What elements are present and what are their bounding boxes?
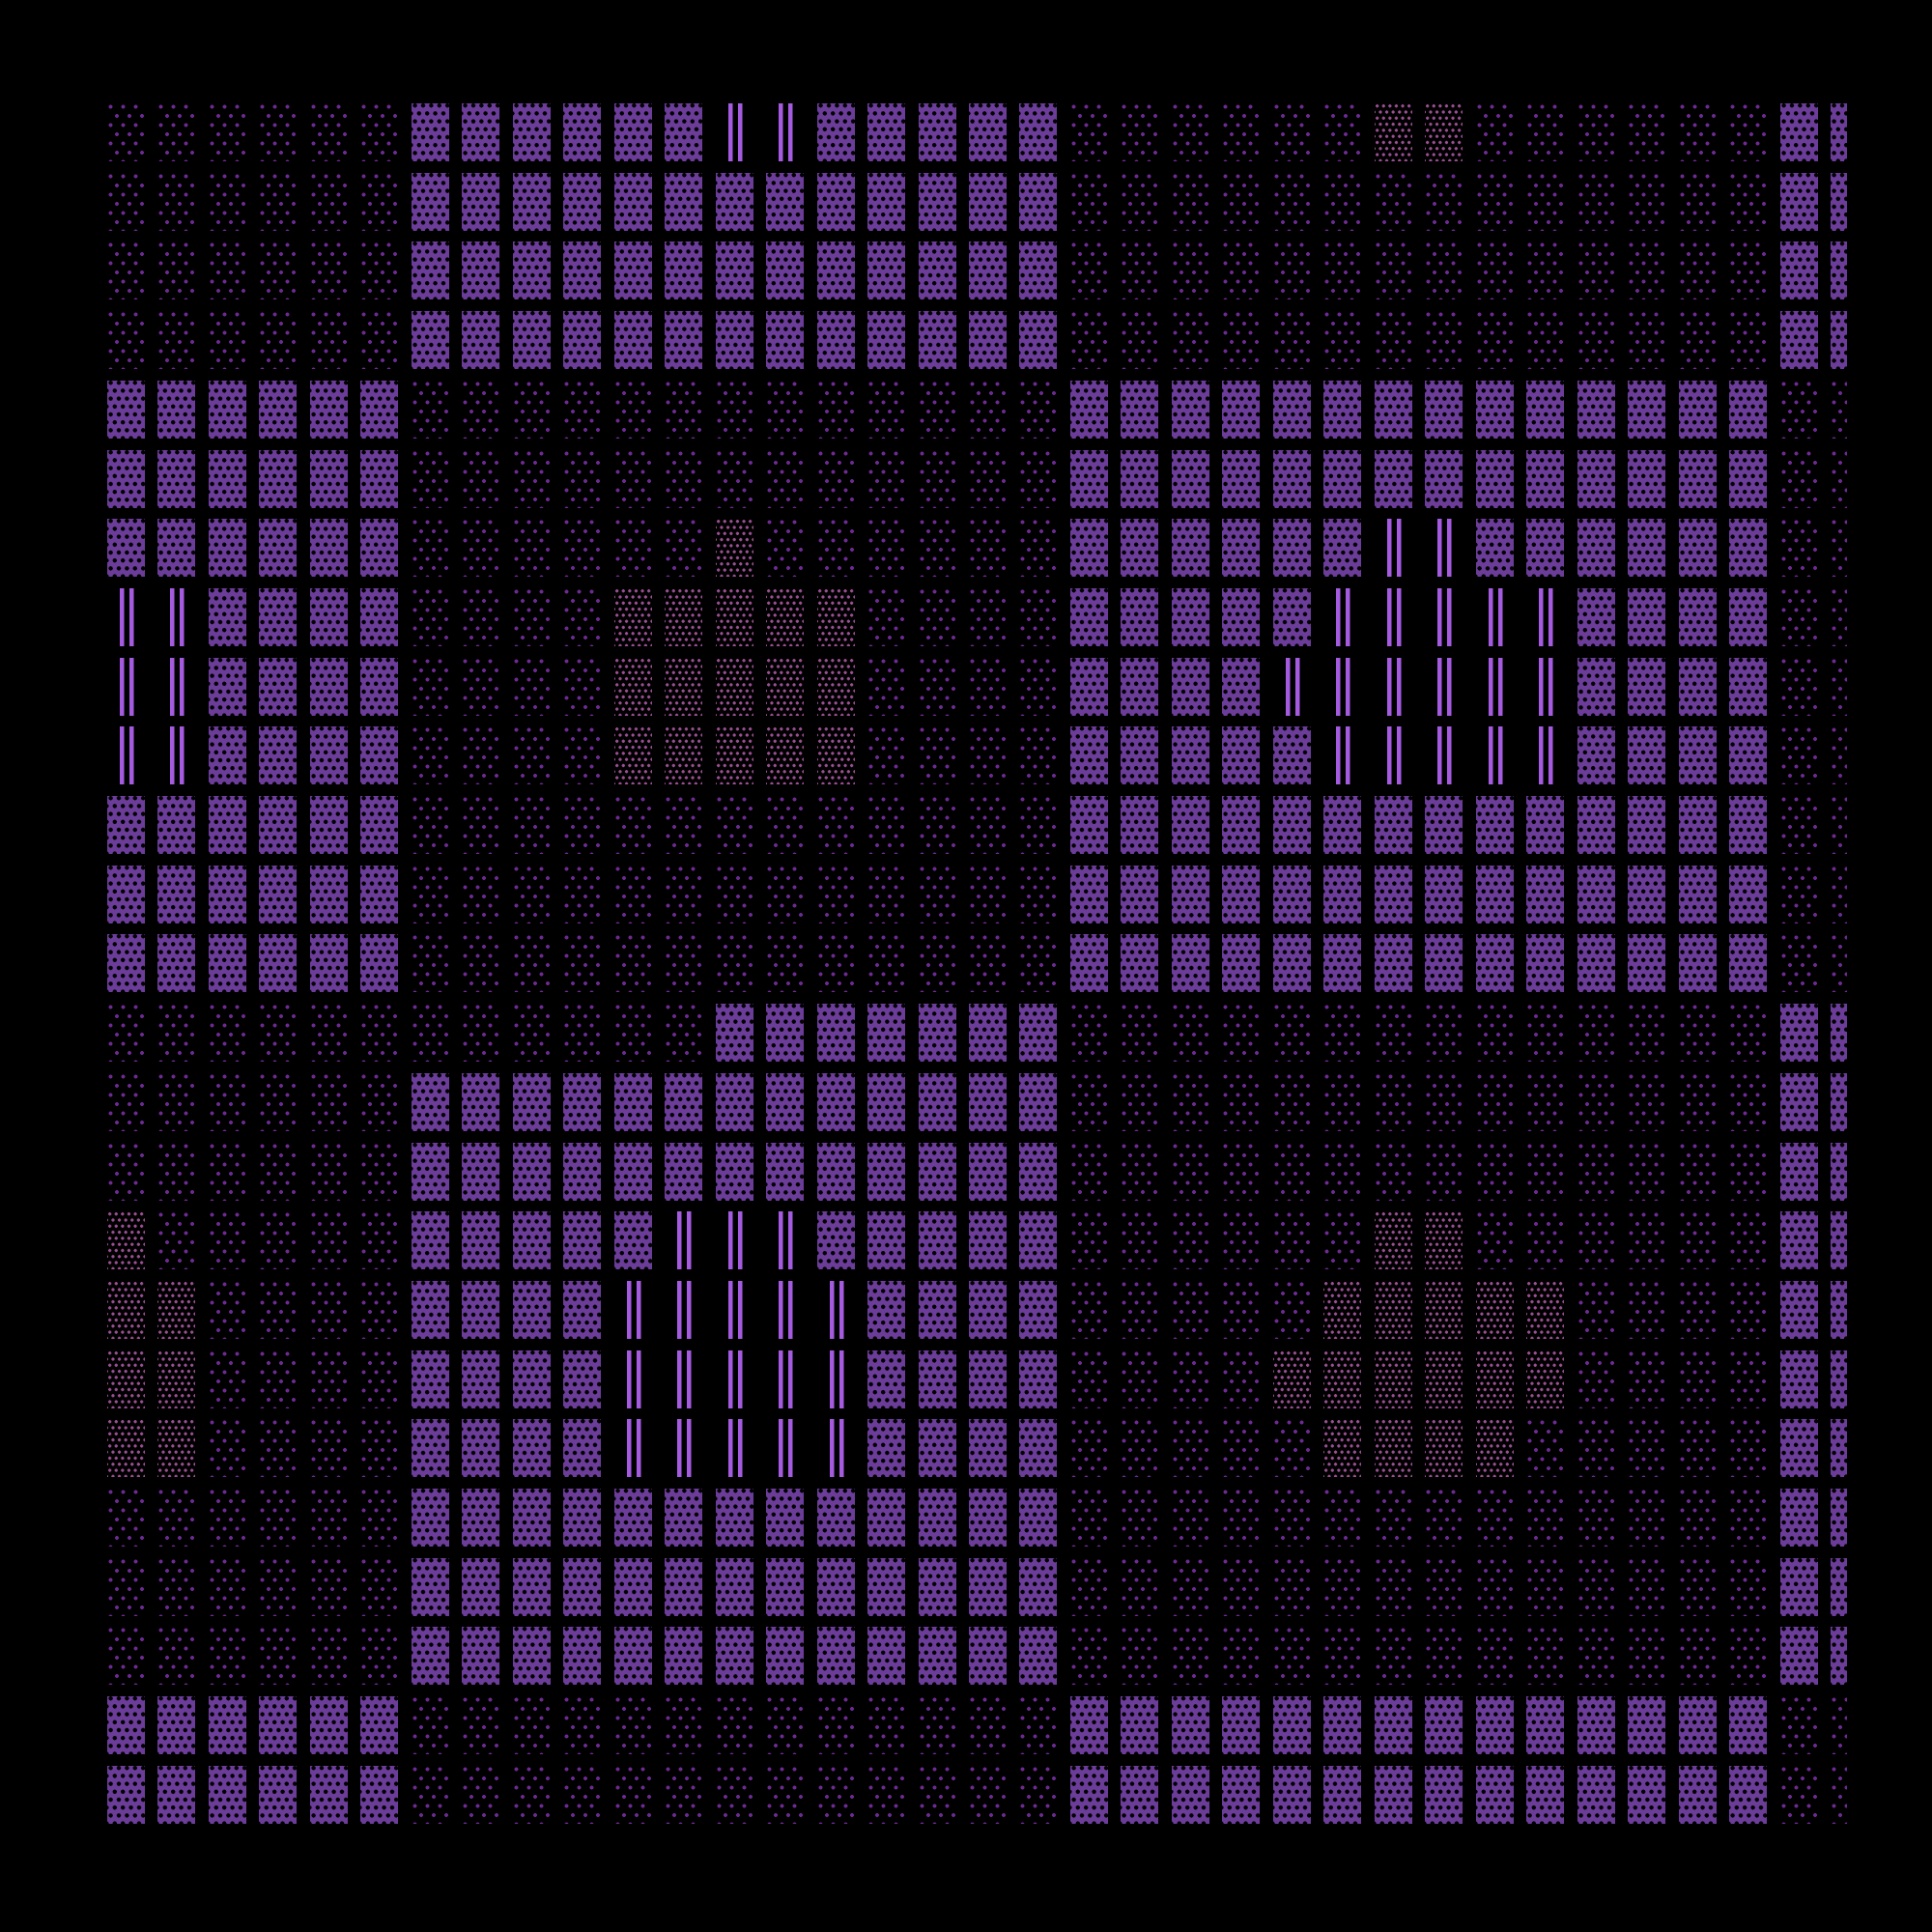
cell-bars (766, 1350, 804, 1408)
cell-bright (157, 1696, 195, 1754)
cell-bright (1729, 726, 1767, 784)
cell-bright (1222, 934, 1260, 992)
cell-bright (1375, 934, 1412, 992)
cell-dim (614, 381, 652, 439)
cell-dim (1729, 1073, 1767, 1131)
cell-bright (1780, 241, 1818, 299)
cell-dim (462, 450, 499, 508)
cell-bars (614, 1419, 652, 1477)
cell-bright (513, 173, 551, 231)
cell-bright (1577, 381, 1615, 439)
cell-bright (157, 796, 195, 854)
cell-dim (412, 1696, 449, 1754)
cell-bright (107, 796, 145, 854)
cell-dim (1628, 1419, 1665, 1477)
cell-dim (1628, 173, 1665, 231)
cell-bright (1070, 450, 1108, 508)
cell-bright (1019, 173, 1057, 231)
cell-bright (1628, 658, 1665, 716)
cell-dim (157, 1073, 195, 1131)
cell-dim (1222, 1281, 1260, 1339)
cell-dim (310, 103, 348, 161)
cell-dim (1222, 1143, 1260, 1201)
cell-bright (360, 866, 398, 923)
cell-dim (1070, 241, 1108, 299)
cell-dim (1323, 1143, 1361, 1201)
cell-bright (1172, 1766, 1209, 1824)
cell-dim (1172, 1350, 1209, 1408)
cell-bright (1780, 173, 1818, 231)
cell-bright (1273, 450, 1311, 508)
cell-dim (1172, 1419, 1209, 1477)
cell-bright (412, 1558, 449, 1616)
cell-dim (1019, 934, 1057, 992)
cell-bright (1070, 381, 1108, 439)
cell-dim (563, 588, 601, 646)
cell-dim (1121, 1558, 1158, 1616)
cell-dim (1323, 173, 1361, 231)
cell-bars (1375, 726, 1412, 784)
cell-dim (1577, 1004, 1615, 1062)
cell-dim (1526, 1211, 1564, 1269)
cell-bright (1679, 1766, 1717, 1824)
cell-bright (1222, 796, 1260, 854)
cell-bars (665, 1350, 702, 1408)
cell-dim (1172, 1004, 1209, 1062)
cell-medium (1425, 1350, 1463, 1408)
cell-dim (1222, 1419, 1260, 1477)
cell-bright (1780, 1627, 1818, 1685)
cell-bright (1121, 658, 1158, 716)
cell-dim (969, 796, 1007, 854)
cell-bright (1628, 866, 1665, 923)
cell-medium (716, 658, 753, 716)
cell-dim (209, 1004, 246, 1062)
cell-bright (1628, 519, 1665, 577)
cell-bright (412, 311, 449, 369)
cell-dim (1780, 658, 1818, 716)
cell-bright (107, 866, 145, 923)
cell-dim (513, 658, 551, 716)
cell-bright (1679, 1696, 1717, 1754)
cell-dim (1628, 1281, 1665, 1339)
cell-dim (310, 1004, 348, 1062)
cell-dim (1628, 103, 1665, 161)
cell-bright (1780, 1143, 1818, 1201)
cell-bright (1323, 796, 1361, 854)
cell-bright (1780, 311, 1818, 369)
cell-bright (1526, 866, 1564, 923)
cell-dim (1121, 1281, 1158, 1339)
cell-dim (462, 1696, 499, 1754)
cell-bright (1476, 796, 1514, 854)
cell-dim (462, 866, 499, 923)
cell-bright (1577, 866, 1615, 923)
cell-bars (614, 1281, 652, 1339)
cell-dim (1831, 866, 1847, 923)
cell-bright (259, 726, 297, 784)
cell-medium (665, 588, 702, 646)
cell-dim (1577, 1419, 1615, 1477)
cell-dim (259, 311, 297, 369)
cell-bright (665, 103, 702, 161)
cell-dim (1070, 1489, 1108, 1547)
cell-bright (209, 658, 246, 716)
cell-bright (969, 311, 1007, 369)
cell-dim (817, 934, 855, 992)
cell-dim (1476, 1558, 1514, 1616)
cell-dim (1729, 1281, 1767, 1339)
cell-bright (1476, 450, 1514, 508)
cell-dim (1780, 1696, 1818, 1754)
cell-dim (1729, 311, 1767, 369)
cell-bright (563, 241, 601, 299)
cell-bright (157, 519, 195, 577)
cell-dim (1222, 1073, 1260, 1131)
cell-bright (1172, 381, 1209, 439)
cell-dim (209, 1350, 246, 1408)
cell-bright (969, 1004, 1007, 1062)
cell-dim (1476, 311, 1514, 369)
cell-dim (1323, 1558, 1361, 1616)
cell-bright (310, 1696, 348, 1754)
cell-dim (1577, 1350, 1615, 1408)
cell-medium (614, 726, 652, 784)
cell-bright (513, 1627, 551, 1685)
cell-dim (1019, 658, 1057, 716)
cell-dim (1628, 1350, 1665, 1408)
cell-bright (1679, 519, 1717, 577)
cell-bright (1628, 726, 1665, 784)
cell-bright (1577, 726, 1615, 784)
cell-dim (1831, 1696, 1847, 1754)
cell-dim (1121, 1489, 1158, 1547)
cell-bright (1831, 241, 1847, 299)
cell-bright (1729, 866, 1767, 923)
cell-bright (412, 1073, 449, 1131)
cell-dim (1172, 173, 1209, 231)
cell-medium (107, 1419, 145, 1477)
cell-bright (817, 1627, 855, 1685)
cell-dim (1577, 1281, 1615, 1339)
cell-bright (665, 173, 702, 231)
cell-dim (1273, 241, 1311, 299)
cell-bright (665, 1627, 702, 1685)
cell-bright (1019, 1073, 1057, 1131)
cell-bright (563, 1350, 601, 1408)
cell-dim (1019, 1766, 1057, 1824)
cell-bright (969, 1073, 1007, 1131)
cell-dim (1323, 1004, 1361, 1062)
cell-dim (766, 1696, 804, 1754)
cell-dim (462, 726, 499, 784)
cell-bright (1070, 588, 1108, 646)
cell-dim (1323, 1489, 1361, 1547)
cell-dim (1070, 311, 1108, 369)
cell-dim (1577, 173, 1615, 231)
cell-dim (360, 1627, 398, 1685)
cell-bright (1577, 450, 1615, 508)
cell-dim (310, 1419, 348, 1477)
cell-bright (1172, 519, 1209, 577)
cell-bars (665, 1281, 702, 1339)
cell-dim (1526, 311, 1564, 369)
cell-dim (817, 450, 855, 508)
cell-dim (1425, 1489, 1463, 1547)
cell-dim (563, 450, 601, 508)
cell-bright (1172, 796, 1209, 854)
cell-bright (1679, 588, 1717, 646)
cell-dim (1577, 1073, 1615, 1131)
cell-dim (1679, 1211, 1717, 1269)
cell-dim (563, 726, 601, 784)
cell-bright (360, 519, 398, 577)
cell-dim (107, 1627, 145, 1685)
cell-dim (1679, 1004, 1717, 1062)
cell-dim (614, 519, 652, 577)
cell-bright (614, 241, 652, 299)
cell-bright (360, 796, 398, 854)
cell-dim (259, 1558, 297, 1616)
cell-dim (1172, 1073, 1209, 1131)
cell-dim (157, 241, 195, 299)
cell-dim (1222, 103, 1260, 161)
cell-bars (716, 103, 753, 161)
cell-bright (1070, 796, 1108, 854)
cell-dim (1273, 311, 1311, 369)
cell-dim (310, 311, 348, 369)
cell-bright (209, 796, 246, 854)
cell-dim (157, 1211, 195, 1269)
cell-dim (1375, 311, 1412, 369)
cell-bright (462, 241, 499, 299)
cell-bars (1425, 658, 1463, 716)
cell-dim (1222, 1627, 1260, 1685)
cell-dim (1628, 241, 1665, 299)
cell-bright (969, 173, 1007, 231)
cell-bright (1019, 241, 1057, 299)
cell-dim (1323, 1073, 1361, 1131)
cell-dim (563, 796, 601, 854)
cell-dim (1070, 1350, 1108, 1408)
cell-bright (462, 1558, 499, 1616)
cell-medium (716, 726, 753, 784)
cell-dim (1273, 1211, 1311, 1269)
cell-bright (1172, 1696, 1209, 1754)
cell-bright (1831, 173, 1847, 231)
cell-dim (919, 934, 956, 992)
cell-bars (107, 658, 145, 716)
cell-bright (665, 1489, 702, 1547)
cell-dim (209, 1627, 246, 1685)
cell-bright (817, 241, 855, 299)
cell-bright (919, 1489, 956, 1547)
cell-bars (716, 1419, 753, 1477)
cell-dim (1831, 726, 1847, 784)
cell-dim (1273, 1489, 1311, 1547)
cell-dim (1476, 173, 1514, 231)
cell-bright (1273, 519, 1311, 577)
cell-dim (1729, 1211, 1767, 1269)
cell-dim (1019, 726, 1057, 784)
cell-bright (1729, 381, 1767, 439)
cell-bright (360, 450, 398, 508)
cell-bright (919, 1558, 956, 1616)
cell-bright (716, 1558, 753, 1616)
cell-bright (513, 1073, 551, 1131)
cell-bright (1526, 1696, 1564, 1754)
cell-dim (563, 1004, 601, 1062)
cell-dim (919, 381, 956, 439)
cell-bright (1172, 450, 1209, 508)
cell-bright (867, 1211, 905, 1269)
cell-bright (462, 1627, 499, 1685)
cell-dim (1172, 1489, 1209, 1547)
cell-bright (1526, 519, 1564, 577)
cell-dim (614, 934, 652, 992)
cell-dim (1526, 103, 1564, 161)
cell-dim (1425, 1073, 1463, 1131)
cell-dim (969, 1696, 1007, 1754)
cell-bars (1425, 588, 1463, 646)
cell-bright (107, 450, 145, 508)
cell-medium (1375, 1281, 1412, 1339)
cell-dim (1729, 1004, 1767, 1062)
cell-dim (157, 1143, 195, 1201)
cell-dim (1679, 1281, 1717, 1339)
cell-bright (563, 1419, 601, 1477)
cell-bright (1780, 103, 1818, 161)
cell-dim (157, 1627, 195, 1685)
cell-bright (1780, 1281, 1818, 1339)
cell-dim (1070, 1627, 1108, 1685)
cell-dim (107, 1489, 145, 1547)
cell-bright (766, 173, 804, 231)
cell-bright (1679, 934, 1717, 992)
cell-bright (614, 103, 652, 161)
cell-dim (563, 866, 601, 923)
cell-medium (665, 726, 702, 784)
cell-bright (919, 1627, 956, 1685)
cell-bright (209, 588, 246, 646)
cell-bars (157, 658, 195, 716)
cell-dim (1679, 241, 1717, 299)
cell-bright (209, 1766, 246, 1824)
cell-dim (1375, 1004, 1412, 1062)
cell-bright (766, 1143, 804, 1201)
cell-dim (969, 450, 1007, 508)
cell-bright (665, 1558, 702, 1616)
cell-dim (1780, 934, 1818, 992)
cell-dim (412, 519, 449, 577)
cell-dim (1577, 1489, 1615, 1547)
cell-dim (1222, 1211, 1260, 1269)
cell-medium (1476, 1350, 1514, 1408)
cell-medium (716, 588, 753, 646)
cell-bright (1425, 381, 1463, 439)
cell-dim (1019, 1696, 1057, 1754)
cell-bright (1273, 381, 1311, 439)
cell-bright (1628, 1766, 1665, 1824)
cell-dim (107, 1073, 145, 1131)
cell-dim (310, 1489, 348, 1547)
cell-bright (867, 1004, 905, 1062)
cell-bars (817, 1419, 855, 1477)
cell-dim (1425, 1143, 1463, 1201)
cell-dim (716, 1766, 753, 1824)
cell-dim (513, 1696, 551, 1754)
cell-bright (614, 1489, 652, 1547)
cell-bright (867, 241, 905, 299)
cell-bright (1121, 450, 1158, 508)
cell-bright (1375, 381, 1412, 439)
cell-dim (412, 450, 449, 508)
cell-dim (817, 796, 855, 854)
cell-bright (1273, 726, 1311, 784)
cell-dim (1780, 519, 1818, 577)
cell-dim (462, 934, 499, 992)
cell-bright (1577, 934, 1615, 992)
cell-bright (513, 1211, 551, 1269)
cell-dim (360, 1143, 398, 1201)
cell-bright (919, 1281, 956, 1339)
cell-bright (209, 866, 246, 923)
cell-dim (1831, 1766, 1847, 1824)
cell-bright (614, 1558, 652, 1616)
cell-bright (867, 103, 905, 161)
cell-dim (665, 1004, 702, 1062)
cell-dim (157, 311, 195, 369)
cell-dim (969, 866, 1007, 923)
cell-bright (867, 311, 905, 369)
cell-dim (1729, 1627, 1767, 1685)
cell-bright (259, 934, 297, 992)
cell-dim (310, 173, 348, 231)
cell-dim (462, 1766, 499, 1824)
cell-bright (1273, 866, 1311, 923)
cell-bright (1679, 450, 1717, 508)
cell-bright (665, 1073, 702, 1131)
cell-bright (1273, 1766, 1311, 1824)
cell-dim (766, 934, 804, 992)
cell-dim (1425, 1627, 1463, 1685)
cell-bars (1375, 658, 1412, 716)
cell-bright (969, 1558, 1007, 1616)
cell-bars (1323, 658, 1361, 716)
cell-bright (360, 658, 398, 716)
cell-dim (1172, 1558, 1209, 1616)
cell-bright (919, 173, 956, 231)
cell-dim (1628, 1627, 1665, 1685)
cell-dim (969, 519, 1007, 577)
cell-dim (1070, 1143, 1108, 1201)
cell-bright (513, 1489, 551, 1547)
cell-bright (969, 1211, 1007, 1269)
cell-bright (817, 1211, 855, 1269)
cell-dim (360, 1558, 398, 1616)
cell-bright (766, 1489, 804, 1547)
cell-dim (513, 796, 551, 854)
cell-dim (412, 1004, 449, 1062)
cell-dim (867, 726, 905, 784)
cell-bright (919, 1350, 956, 1408)
cell-dim (1375, 1073, 1412, 1131)
cell-dim (1831, 588, 1847, 646)
cell-bright (462, 103, 499, 161)
cell-bright (1019, 1350, 1057, 1408)
cell-dim (513, 1004, 551, 1062)
cell-bright (310, 796, 348, 854)
